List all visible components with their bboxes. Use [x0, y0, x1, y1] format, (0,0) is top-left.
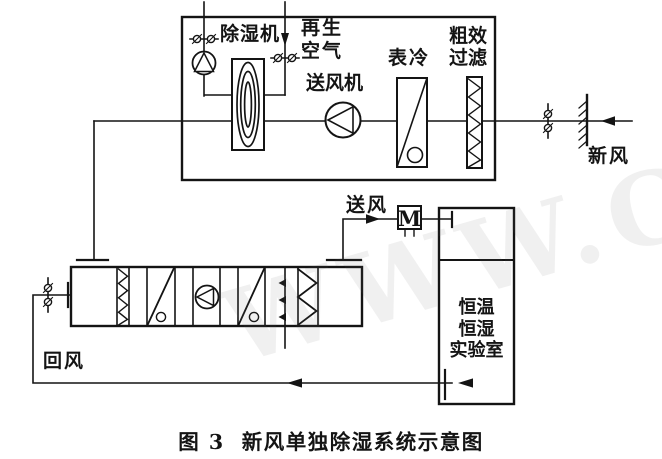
coarse-filter-label-line2: 过滤 [449, 48, 487, 69]
eliminator-icon [298, 269, 317, 325]
surface-cooler-label: 表冷 [388, 48, 430, 69]
figure-number: 图 3 [178, 425, 224, 455]
ahu-box [71, 267, 362, 348]
schematic-linework: M [0, 0, 662, 459]
coarse-filter-label-line1: 粗效 [449, 26, 487, 47]
supply-fan-icon [326, 103, 361, 138]
ahu-coil-icon [239, 268, 265, 325]
regen-fan-icon [193, 52, 216, 75]
spray-humidifier-icon [279, 268, 287, 348]
heater-mark: M [398, 206, 421, 231]
room-name-line1: 恒温 [439, 297, 514, 319]
return-air-label: 回风 [43, 351, 85, 372]
room-out-arrow-icon [458, 378, 473, 387]
regen-air-label-line1: 再生 [301, 18, 343, 39]
regen-air-label-line2: 空气 [301, 41, 343, 62]
supply-fan-label: 送风机 [306, 73, 363, 94]
flange-icons [68, 212, 452, 399]
figure-caption: 图 3 新风单独除湿系统示意图 [0, 425, 662, 455]
fresh-air-label: 新风 [588, 146, 630, 167]
desiccant-wheel-icon [232, 59, 264, 150]
coarse-filter-icon [467, 77, 482, 168]
room-name: 恒温 恒湿 实验室 [439, 297, 514, 362]
figure-canvas: M 除湿机 再生 空气 送风机 表冷 粗效 过滤 新风 送风 回风 恒温 恒湿 … [0, 0, 662, 459]
electric-heater-icon: M [398, 206, 421, 236]
ahu-filter-icon [119, 269, 128, 325]
return-mid-arrow-icon [287, 378, 302, 387]
regen-in-arrow-icon [281, 33, 289, 46]
cooling-coil-icon [397, 78, 427, 167]
fresh-air-arrow-icon [601, 116, 615, 126]
room-name-line2: 恒湿 [439, 319, 514, 341]
figure-title: 新风单独除湿系统示意图 [242, 425, 484, 455]
ahu-coil-icon [148, 268, 175, 325]
dehumidifier-label: 除湿机 [220, 24, 280, 45]
ahu-fan-icon [196, 286, 219, 309]
room-name-line3: 实验室 [439, 340, 514, 362]
supply-air-label: 送风 [346, 195, 388, 216]
